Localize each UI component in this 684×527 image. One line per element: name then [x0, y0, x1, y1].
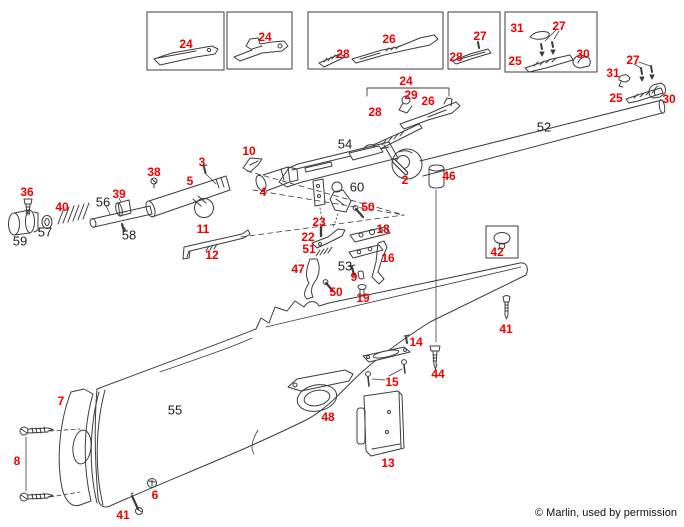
- ejector-pin: [394, 161, 406, 173]
- inset-box-3: [308, 12, 443, 69]
- takedown-screw: [430, 346, 440, 369]
- front-sight-group: [619, 62, 666, 103]
- swivel-stud-box: [486, 226, 518, 258]
- trigger-assembly-drawing: [305, 182, 390, 299]
- stock-drawing: [95, 263, 527, 507]
- trigger-guard-drawing: [288, 370, 353, 415]
- buttpad-screws: [20, 427, 53, 501]
- forend-screw: [503, 296, 510, 320]
- inset-box-4: [448, 12, 500, 69]
- bolt-assembly-drawing: [144, 158, 298, 218]
- cartridge-guide-group: [183, 230, 250, 259]
- receiver-drawing: [279, 142, 398, 226]
- inner-magazine-tube-group: [9, 198, 153, 235]
- inset-box-2: [227, 12, 292, 69]
- takedown-stud: [429, 165, 444, 342]
- exploded-view-art: [0, 0, 684, 527]
- magazine-drawing: [357, 391, 404, 456]
- inset-box-1: [147, 12, 224, 70]
- guard-plate-group: [363, 335, 410, 386]
- stock-escutcheon: [148, 479, 157, 488]
- diagram-canvas: 2424282627283127253027312530242926285254…: [0, 0, 684, 527]
- copyright-note: © Marlin, used by permission: [535, 507, 677, 519]
- inset-box-5: [505, 12, 597, 72]
- stock-screw-bottom: [131, 493, 143, 515]
